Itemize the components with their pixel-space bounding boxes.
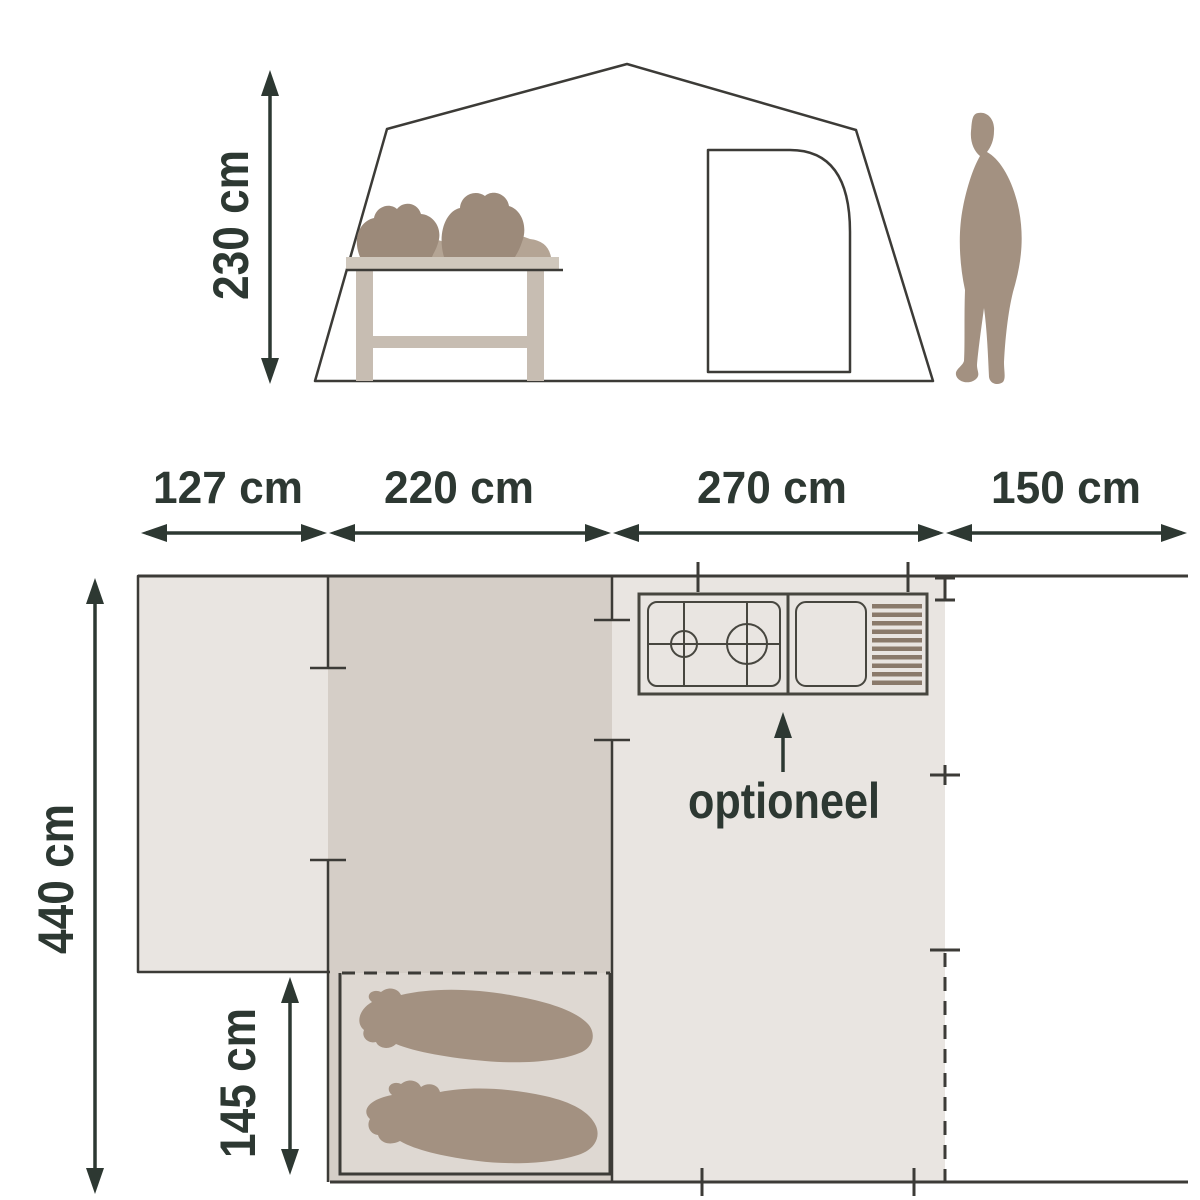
- arrow-right-icon: [585, 524, 611, 542]
- dimension-widths: 127 cm 220 cm 270 cm 150 cm: [141, 462, 1187, 542]
- kitchen-note-label: optioneel: [688, 773, 880, 829]
- gear-bag-left: [357, 204, 440, 257]
- table-top: [346, 257, 559, 270]
- width-label-127: 127 cm: [153, 462, 303, 513]
- arrow-left-icon: [329, 524, 355, 542]
- height-label: 230 cm: [203, 150, 259, 300]
- tent-dimension-diagram: 230 cm: [0, 0, 1200, 1200]
- area-porch-127: [138, 576, 328, 972]
- gear-bag-right: [442, 193, 525, 257]
- side-view: 230 cm: [203, 64, 1022, 384]
- arrow-up-icon: [281, 977, 299, 1003]
- gear-on-table: [357, 193, 551, 257]
- diagram-svg: 230 cm: [0, 0, 1200, 1200]
- table-leg-left: [356, 270, 373, 381]
- dimension-depth-440: 440 cm: [28, 578, 104, 1194]
- width-label-270: 270 cm: [697, 462, 847, 513]
- arrow-right-icon: [918, 524, 944, 542]
- arrow-down-icon: [281, 1149, 299, 1175]
- dimension-height-230: 230 cm: [203, 70, 279, 384]
- arrow-right-icon: [301, 524, 327, 542]
- floor-plan: optioneel 127 cm 220 cm 270 cm 150 cm: [28, 462, 1188, 1196]
- width-label-150: 150 cm: [991, 462, 1141, 513]
- arrow-down-icon: [261, 358, 279, 384]
- arrow-left-icon: [946, 524, 972, 542]
- dimension-bed-145: 145 cm: [210, 977, 299, 1175]
- depth-label: 440 cm: [28, 804, 84, 954]
- table-leg-right: [527, 270, 544, 381]
- bed-width-label: 145 cm: [210, 1008, 266, 1158]
- width-label-220: 220 cm: [384, 462, 534, 513]
- arrow-right-icon: [1161, 524, 1187, 542]
- arrow-up-icon: [261, 70, 279, 96]
- arrow-up-icon: [86, 578, 104, 604]
- arrow-down-icon: [86, 1168, 104, 1194]
- arrow-left-icon: [141, 524, 167, 542]
- arrow-left-icon: [613, 524, 639, 542]
- person-silhouette: [956, 113, 1022, 384]
- table: [346, 257, 563, 381]
- table-rail: [362, 336, 537, 348]
- tent-door: [708, 150, 850, 372]
